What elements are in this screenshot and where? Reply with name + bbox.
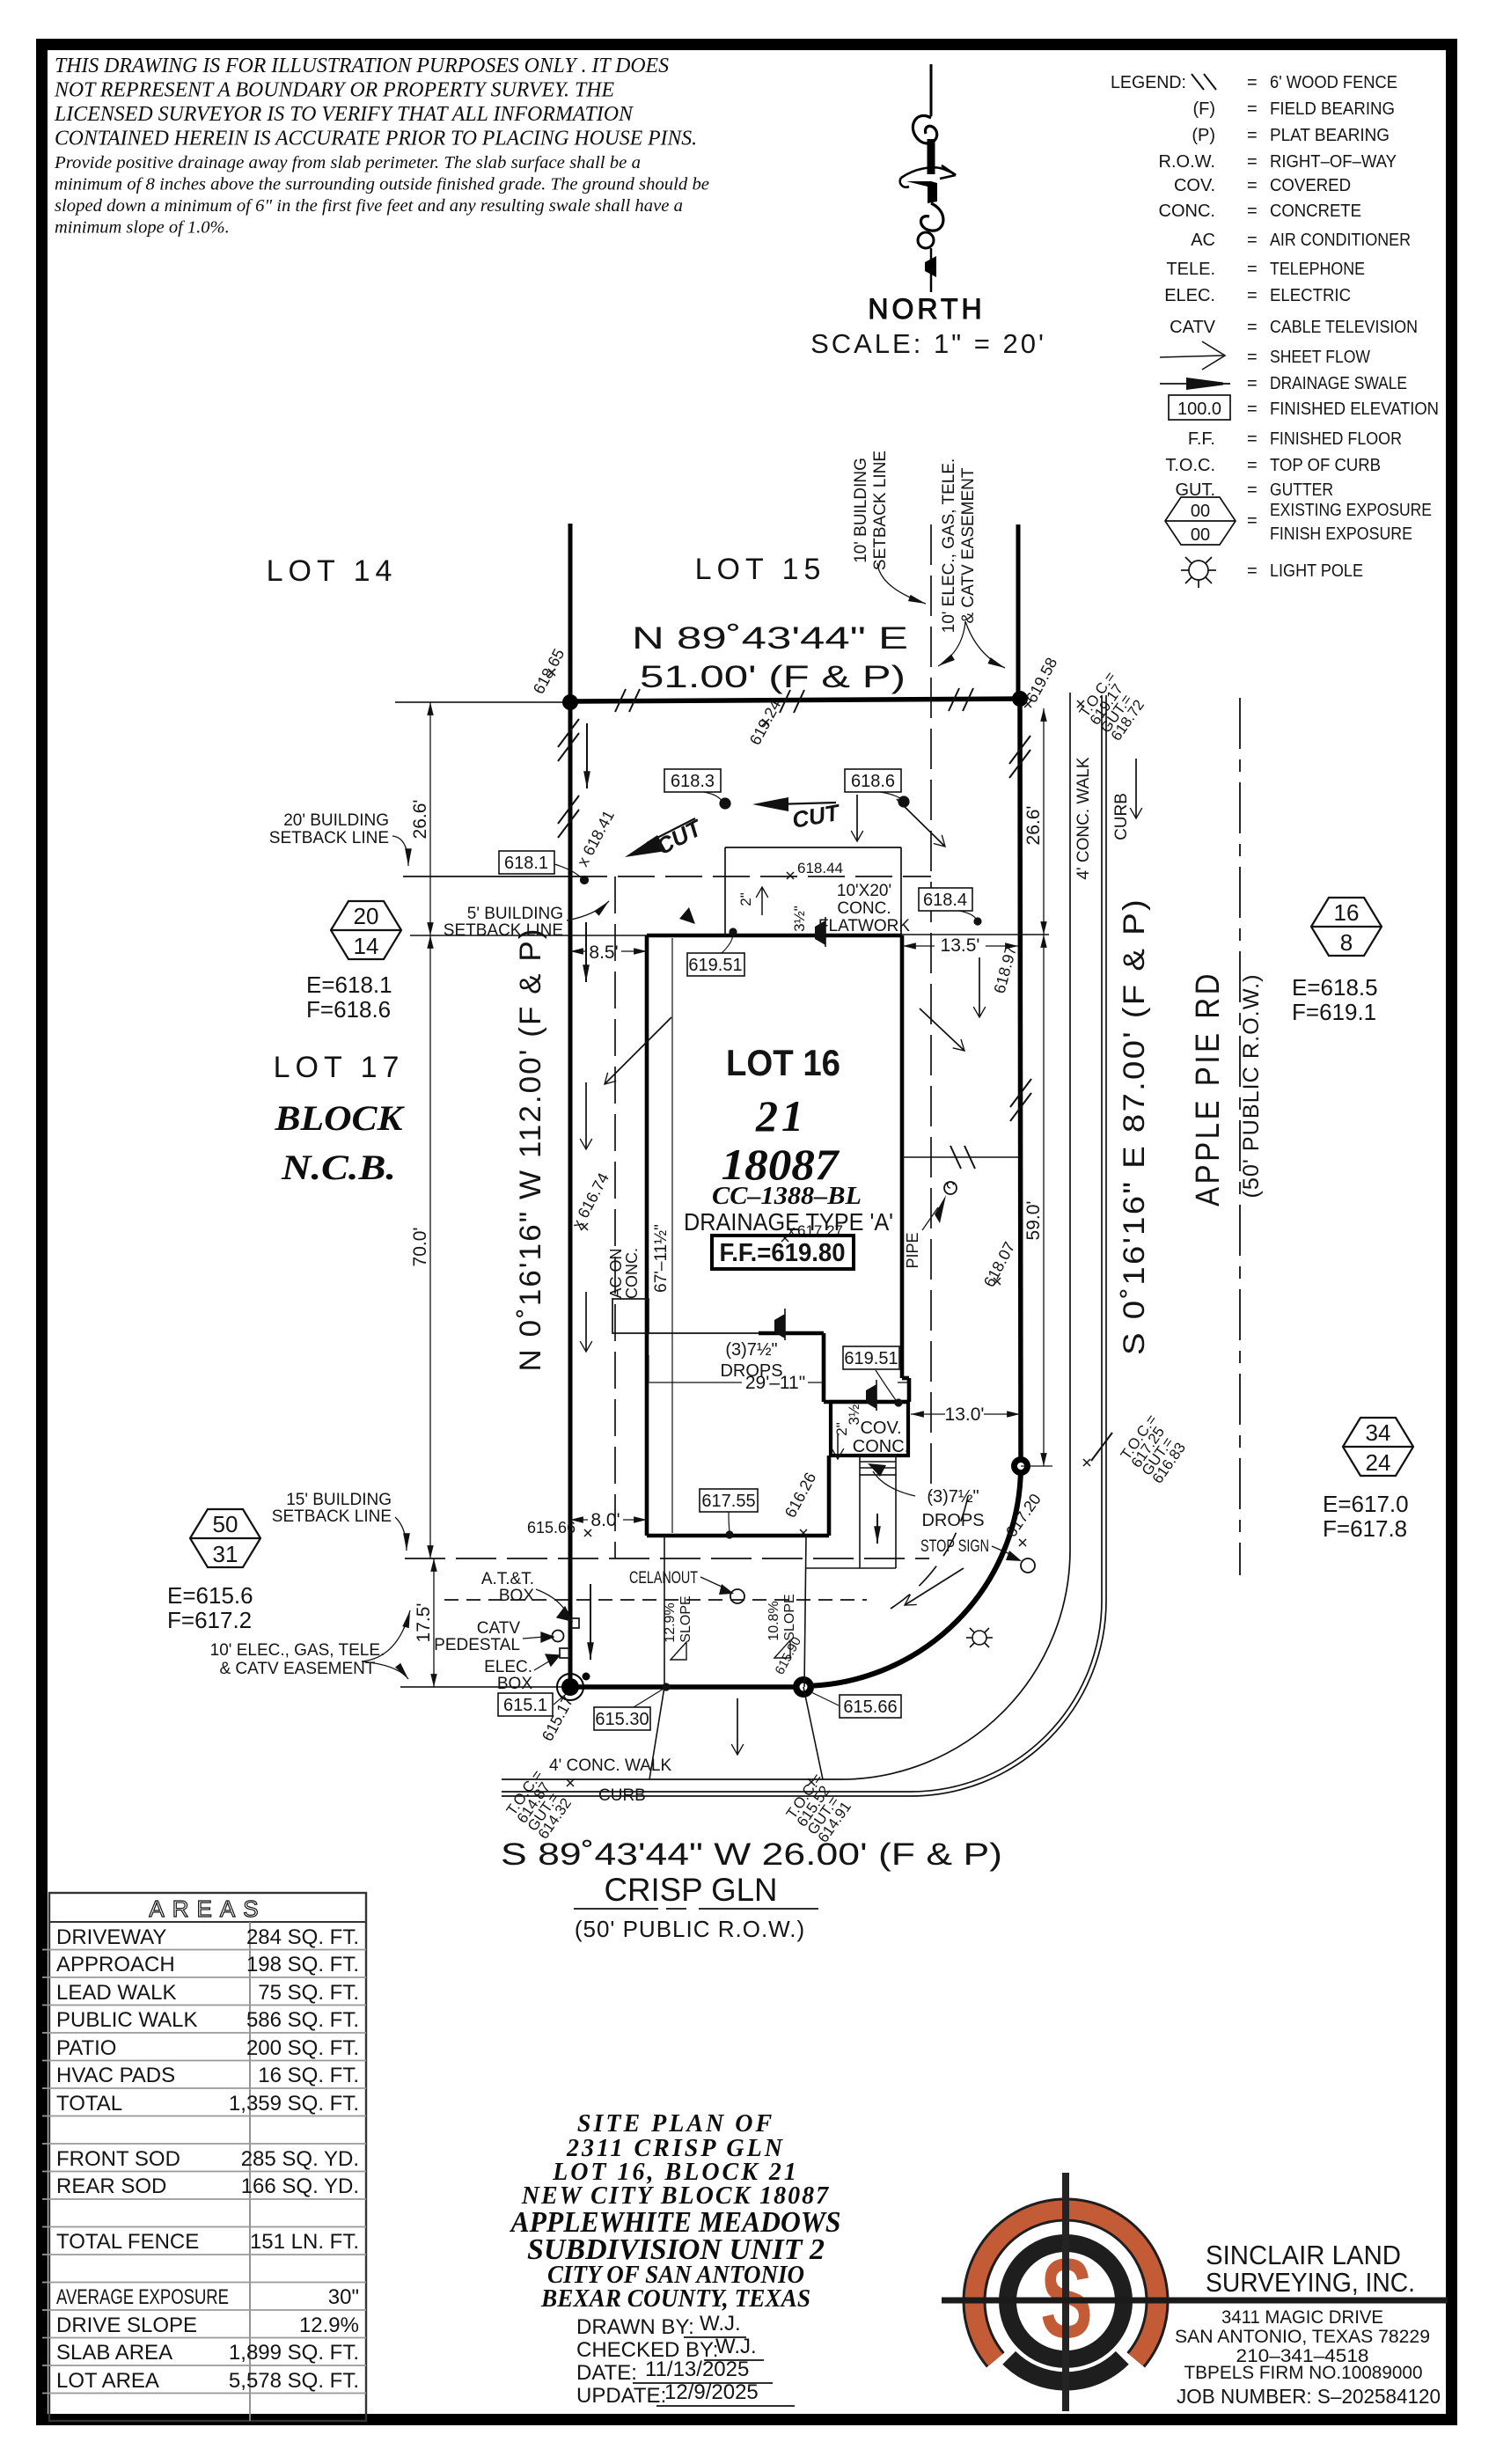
svg-text:=: = bbox=[1247, 480, 1258, 500]
svg-text:=: = bbox=[1247, 561, 1258, 581]
svg-text:=: = bbox=[1247, 318, 1258, 337]
svg-text:00: 00 bbox=[1191, 525, 1210, 545]
svg-text:F.F.=619.80: F.F.=619.80 bbox=[720, 1239, 846, 1267]
svg-text:20: 20 bbox=[354, 903, 379, 929]
svg-text:2": 2" bbox=[737, 892, 754, 906]
svg-text:13.0': 13.0' bbox=[945, 1404, 985, 1425]
svg-text:615.66: 615.66 bbox=[843, 1698, 897, 1717]
svg-text:=: = bbox=[1247, 126, 1258, 145]
svg-text:& CATV EASEMENT: & CATV EASEMENT bbox=[959, 467, 978, 623]
svg-text:10' BUILDING: 10' BUILDING bbox=[852, 458, 870, 563]
svg-text:TELEPHONE: TELEPHONE bbox=[1270, 260, 1365, 279]
svg-text:S 0˚16'16" E 87.00' (F & P): S 0˚16'16" E 87.00' (F & P) bbox=[1118, 898, 1151, 1355]
svg-text:618.4: 618.4 bbox=[923, 891, 967, 910]
svg-text:E=618.5: E=618.5 bbox=[1292, 974, 1378, 1001]
svg-text:HVAC PADS: HVAC PADS bbox=[56, 2064, 175, 2087]
svg-text:COVERED: COVERED bbox=[1270, 176, 1351, 195]
svg-text:=: = bbox=[1247, 429, 1258, 449]
svg-text:CONCRETE: CONCRETE bbox=[1270, 202, 1361, 221]
svg-text:=: = bbox=[1247, 152, 1258, 172]
svg-text:RIGHT–OF–WAY: RIGHT–OF–WAY bbox=[1270, 152, 1397, 172]
svg-text:20' BUILDING: 20' BUILDING bbox=[283, 811, 389, 830]
svg-text:TBPELS FIRM NO.10089000: TBPELS FIRM NO.10089000 bbox=[1184, 2363, 1423, 2383]
svg-text:THIS DRAWING IS FOR ILLUSTRATI: THIS DRAWING IS FOR ILLUSTRATION PURPOSE… bbox=[55, 54, 669, 77]
svg-text:17.5': 17.5' bbox=[414, 1603, 434, 1643]
svg-text:1,359 SQ. FT.: 1,359 SQ. FT. bbox=[229, 2092, 359, 2116]
svg-text:CONC.: CONC. bbox=[623, 1248, 641, 1299]
svg-text:100.0: 100.0 bbox=[1177, 400, 1221, 419]
svg-text:285 SQ. YD.: 285 SQ. YD. bbox=[241, 2147, 359, 2171]
svg-text:N 0˚16'16" W 112.00' (F & P): N 0˚16'16" W 112.00' (F & P) bbox=[514, 928, 547, 1372]
svg-text:BOX: BOX bbox=[499, 1587, 534, 1605]
svg-text:ELEC.: ELEC. bbox=[484, 1658, 532, 1676]
svg-text:T.O.C.: T.O.C. bbox=[1165, 456, 1215, 475]
svg-text:TOTAL: TOTAL bbox=[56, 2092, 122, 2116]
svg-text:50: 50 bbox=[213, 1511, 238, 1537]
svg-text:618.65: 618.65 bbox=[530, 646, 568, 697]
svg-text:10'X20': 10'X20' bbox=[837, 882, 891, 900]
svg-text:166 SQ. YD.: 166 SQ. YD. bbox=[241, 2174, 359, 2198]
svg-text:26.6': 26.6' bbox=[410, 800, 430, 840]
svg-text:COV.: COV. bbox=[1174, 176, 1215, 195]
svg-text:E=615.6: E=615.6 bbox=[167, 1582, 253, 1609]
svg-text:30": 30" bbox=[328, 2285, 359, 2309]
svg-text:=: = bbox=[1247, 176, 1258, 195]
svg-text:FINISH EXPOSURE: FINISH EXPOSURE bbox=[1270, 524, 1412, 544]
svg-text:200 SQ. FT.: 200 SQ. FT. bbox=[246, 2036, 359, 2060]
svg-text:SETBACK LINE: SETBACK LINE bbox=[272, 1507, 392, 1526]
svg-text:E=618.1: E=618.1 bbox=[306, 972, 392, 998]
svg-text:TELE.: TELE. bbox=[1166, 260, 1215, 279]
svg-text:(3)7½": (3)7½" bbox=[927, 1487, 979, 1507]
svg-text:12.9%: 12.9% bbox=[299, 2314, 359, 2337]
svg-text:minimum slope of 1.0%.: minimum slope of 1.0%. bbox=[55, 218, 230, 238]
svg-text:14: 14 bbox=[354, 933, 379, 959]
svg-text:NORTH: NORTH bbox=[868, 293, 985, 325]
svg-text:LEAD WALK: LEAD WALK bbox=[56, 1981, 177, 2005]
svg-text:SLOPE: SLOPE bbox=[678, 1595, 693, 1642]
svg-text:3½': 3½' bbox=[846, 1402, 862, 1426]
svg-text:(50' PUBLIC R.O.W.): (50' PUBLIC R.O.W.) bbox=[575, 1916, 805, 1942]
svg-text:AREAS: AREAS bbox=[149, 1896, 266, 1922]
svg-text:CABLE TELEVISION: CABLE TELEVISION bbox=[1270, 318, 1418, 337]
svg-text:DROPS: DROPS bbox=[921, 1511, 984, 1530]
svg-text:12.9%: 12.9% bbox=[663, 1602, 678, 1642]
svg-text:LEGEND:: LEGEND: bbox=[1111, 73, 1186, 92]
svg-text:FIELD BEARING: FIELD BEARING bbox=[1270, 99, 1395, 119]
svg-text:3411 MAGIC DRIVE: 3411 MAGIC DRIVE bbox=[1221, 2307, 1383, 2328]
svg-text:16 SQ. FT.: 16 SQ. FT. bbox=[258, 2064, 359, 2087]
svg-text:DRAINAGE SWALE: DRAINAGE SWALE bbox=[1270, 374, 1407, 393]
svg-text:CATV: CATV bbox=[477, 1619, 521, 1638]
svg-text:51.00' (F & P): 51.00' (F & P) bbox=[640, 660, 906, 694]
svg-text:F=617.8: F=617.8 bbox=[1323, 1515, 1407, 1542]
svg-text:COV.: COV. bbox=[860, 1419, 901, 1438]
svg-text:=: = bbox=[1247, 202, 1258, 221]
svg-text:FRONT SOD: FRONT SOD bbox=[56, 2147, 180, 2171]
svg-text:21: 21 bbox=[755, 1091, 807, 1140]
svg-text:F=617.2: F=617.2 bbox=[167, 1607, 252, 1633]
svg-text:619.24: 619.24 bbox=[746, 697, 785, 748]
svg-text:(F): (F) bbox=[1192, 99, 1215, 119]
svg-text:LIGHT POLE: LIGHT POLE bbox=[1270, 561, 1363, 581]
svg-text:A.T.&T.: A.T.&T. bbox=[481, 1570, 534, 1588]
svg-text:(3)7½": (3)7½" bbox=[725, 1340, 777, 1360]
svg-text:24: 24 bbox=[1366, 1449, 1391, 1476]
svg-text:CELANOUT: CELANOUT bbox=[629, 1569, 698, 1588]
svg-text:PIPE: PIPE bbox=[904, 1232, 921, 1268]
svg-text:BEXAR COUNTY, TEXAS: BEXAR COUNTY, TEXAS bbox=[540, 2285, 810, 2313]
svg-text:F.F.: F.F. bbox=[1188, 429, 1215, 449]
svg-text:W.J.: W.J. bbox=[700, 2312, 741, 2336]
svg-text:TOP OF CURB: TOP OF CURB bbox=[1270, 456, 1381, 475]
svg-text:CONC.: CONC. bbox=[853, 1437, 909, 1456]
svg-text:CURB: CURB bbox=[598, 1786, 646, 1805]
svg-text:615.30: 615.30 bbox=[595, 1710, 649, 1729]
svg-text:=: = bbox=[1247, 348, 1258, 367]
svg-text:minimum of 8 inches above the: minimum of 8 inches above the surroundin… bbox=[55, 175, 709, 194]
svg-text:CONC.: CONC. bbox=[837, 899, 891, 918]
svg-text:CONC.: CONC. bbox=[1159, 202, 1215, 221]
svg-text:UPDATE:: UPDATE: bbox=[576, 2384, 666, 2408]
svg-text:DATE:: DATE: bbox=[576, 2361, 637, 2385]
svg-text:16: 16 bbox=[1334, 899, 1360, 926]
svg-text:LOT 14: LOT 14 bbox=[267, 554, 398, 588]
svg-text:11/13/2025: 11/13/2025 bbox=[645, 2358, 749, 2381]
svg-text:GUTTER: GUTTER bbox=[1270, 480, 1333, 500]
svg-text:6' WOOD FENCE: 6' WOOD FENCE bbox=[1270, 73, 1397, 92]
svg-text:=: = bbox=[1247, 511, 1258, 531]
svg-text:29'–11": 29'–11" bbox=[745, 1373, 805, 1393]
svg-text:CATV: CATV bbox=[1170, 318, 1216, 337]
svg-text:x 616.74: x 616.74 bbox=[568, 1170, 612, 1232]
svg-text:4' CONC. WALK: 4' CONC. WALK bbox=[1074, 757, 1093, 879]
svg-text:LICENSED SURVEYOR IS TO VERIFY: LICENSED SURVEYOR IS TO VERIFY THAT ALL … bbox=[54, 102, 634, 126]
svg-text:NOT REPRESENT A BOUNDARY OR PR: NOT REPRESENT A BOUNDARY OR PROPERTY SUR… bbox=[54, 78, 614, 102]
svg-text:618.44: 618.44 bbox=[797, 860, 843, 876]
svg-text:x 618.41: x 618.41 bbox=[574, 808, 618, 869]
svg-text:8.5': 8.5' bbox=[589, 942, 618, 963]
svg-text:& CATV EASEMENT: & CATV EASEMENT bbox=[219, 1660, 375, 1678]
svg-text:617.55: 617.55 bbox=[701, 1492, 755, 1511]
svg-text:FINISHED FLOOR: FINISHED FLOOR bbox=[1270, 429, 1402, 449]
svg-text:SETBACK LINE: SETBACK LINE bbox=[871, 451, 890, 570]
svg-text:SHEET FLOW: SHEET FLOW bbox=[1270, 348, 1370, 367]
svg-text:619.51: 619.51 bbox=[844, 1349, 898, 1368]
svg-text:59.0': 59.0' bbox=[1023, 1201, 1044, 1241]
svg-text:SAN ANTONIO, TEXAS 78229: SAN ANTONIO, TEXAS 78229 bbox=[1175, 2327, 1430, 2347]
svg-text:BLOCK: BLOCK bbox=[274, 1098, 405, 1138]
svg-text:DRIVE SLOPE: DRIVE SLOPE bbox=[56, 2314, 197, 2337]
svg-text:1,899 SQ. FT.: 1,899 SQ. FT. bbox=[229, 2341, 359, 2365]
svg-text:APPROACH: APPROACH bbox=[56, 1953, 175, 1976]
svg-text:=: = bbox=[1247, 260, 1258, 279]
svg-text:=: = bbox=[1247, 456, 1258, 475]
svg-text:AC ON: AC ON bbox=[607, 1248, 625, 1298]
svg-text:=: = bbox=[1247, 231, 1258, 250]
svg-text:CURB: CURB bbox=[1112, 793, 1131, 840]
svg-text:F=619.1: F=619.1 bbox=[1292, 999, 1376, 1025]
svg-text:67'–11½": 67'–11½" bbox=[652, 1224, 671, 1293]
svg-text:618.3: 618.3 bbox=[671, 772, 715, 791]
svg-text:198 SQ. FT.: 198 SQ. FT. bbox=[246, 1953, 359, 1976]
svg-text:FLATWORK: FLATWORK bbox=[818, 917, 910, 935]
svg-text:12/9/2025: 12/9/2025 bbox=[664, 2380, 759, 2404]
svg-text:E=617.0: E=617.0 bbox=[1323, 1491, 1409, 1517]
svg-text:DRIVEWAY: DRIVEWAY bbox=[56, 1925, 166, 1949]
svg-text:619.58: 619.58 bbox=[1023, 655, 1061, 706]
svg-text:26.6': 26.6' bbox=[1023, 806, 1044, 846]
svg-text:618.97: 618.97 bbox=[991, 944, 1021, 995]
svg-text:SETBACK LINE: SETBACK LINE bbox=[269, 829, 389, 847]
svg-text:619.51: 619.51 bbox=[688, 956, 742, 975]
svg-text:617.20: 617.20 bbox=[1002, 1491, 1045, 1541]
svg-text:AC: AC bbox=[1191, 231, 1215, 250]
svg-text:FINISHED ELEVATION: FINISHED ELEVATION bbox=[1270, 400, 1439, 419]
svg-text:PEDESTAL: PEDESTAL bbox=[434, 1636, 520, 1654]
svg-text:618.07: 618.07 bbox=[980, 1239, 1019, 1290]
svg-text:AIR CONDITIONER: AIR CONDITIONER bbox=[1270, 231, 1411, 250]
svg-text:N 89˚43'44" E: N 89˚43'44" E bbox=[632, 621, 908, 656]
svg-text:R.O.W.: R.O.W. bbox=[1159, 152, 1215, 172]
svg-text:JOB NUMBER: S–202584120: JOB NUMBER: S–202584120 bbox=[1177, 2385, 1441, 2408]
svg-text:=: = bbox=[1247, 374, 1258, 393]
svg-text:SLAB AREA: SLAB AREA bbox=[56, 2341, 172, 2365]
svg-text:5' BUILDING: 5' BUILDING bbox=[467, 905, 563, 923]
svg-text:LOT 16: LOT 16 bbox=[726, 1042, 840, 1083]
svg-text:3½": 3½" bbox=[791, 906, 808, 932]
svg-text:10.8%: 10.8% bbox=[766, 1601, 781, 1640]
svg-text:151 LN. FT.: 151 LN. FT. bbox=[250, 2230, 359, 2254]
svg-text:TOTAL FENCE: TOTAL FENCE bbox=[56, 2230, 199, 2254]
svg-text:=: = bbox=[1247, 286, 1258, 305]
svg-text:615.1: 615.1 bbox=[503, 1696, 547, 1715]
svg-text:APPLE PIE RD: APPLE PIE RD bbox=[1190, 971, 1227, 1206]
svg-text:31: 31 bbox=[213, 1541, 238, 1567]
svg-text:ELEC.: ELEC. bbox=[1164, 286, 1215, 305]
svg-text:SITE PLAN OF: SITE PLAN OF bbox=[577, 2110, 774, 2138]
svg-text:CRISP GLN: CRISP GLN bbox=[605, 1872, 778, 1908]
svg-text:SLOPE: SLOPE bbox=[782, 1594, 797, 1640]
svg-text:(P): (P) bbox=[1192, 126, 1215, 145]
svg-text:LOT AREA: LOT AREA bbox=[56, 2369, 159, 2393]
svg-text:LOT 15: LOT 15 bbox=[695, 553, 826, 586]
svg-text:S 89˚43'44" W 26.00' (F & P): S 89˚43'44" W 26.00' (F & P) bbox=[501, 1837, 1002, 1872]
svg-text:616.26: 616.26 bbox=[781, 1470, 820, 1521]
svg-text:(50' PUBLIC R.O.W.): (50' PUBLIC R.O.W.) bbox=[1239, 974, 1264, 1199]
svg-text:SCALE: 1" = 20': SCALE: 1" = 20' bbox=[810, 328, 1046, 359]
svg-text:10' ELEC., GAS, TELE.: 10' ELEC., GAS, TELE. bbox=[210, 1641, 385, 1660]
svg-text:618.1: 618.1 bbox=[504, 854, 548, 873]
svg-text:PLAT BEARING: PLAT BEARING bbox=[1270, 126, 1390, 145]
svg-text:586 SQ. FT.: 586 SQ. FT. bbox=[246, 2008, 359, 2032]
svg-text:CUT: CUT bbox=[652, 814, 708, 861]
svg-text:PUBLIC WALK: PUBLIC WALK bbox=[56, 2008, 198, 2032]
svg-text:34: 34 bbox=[1366, 1419, 1391, 1446]
svg-text:F=618.6: F=618.6 bbox=[306, 996, 391, 1023]
svg-text:BOX: BOX bbox=[497, 1675, 532, 1693]
svg-text:10' ELEC., GAS, TELE.: 10' ELEC., GAS, TELE. bbox=[940, 458, 958, 634]
svg-text:00: 00 bbox=[1191, 502, 1210, 521]
svg-text:SINCLAIR LAND: SINCLAIR LAND bbox=[1206, 2240, 1401, 2270]
svg-text:LOT 17: LOT 17 bbox=[274, 1051, 405, 1084]
svg-text:N.C.B.: N.C.B. bbox=[281, 1148, 396, 1187]
svg-text:13.5': 13.5' bbox=[941, 935, 980, 956]
svg-text:CC–1388–BL: CC–1388–BL bbox=[712, 1182, 862, 1210]
svg-text:CONTAINED HEREIN IS ACCURATE P: CONTAINED HEREIN IS ACCURATE PRIOR TO PL… bbox=[55, 127, 697, 150]
svg-text:AVERAGE EXPOSURE: AVERAGE EXPOSURE bbox=[56, 2285, 229, 2309]
svg-text:70.0': 70.0' bbox=[410, 1228, 430, 1267]
svg-text:=: = bbox=[1247, 400, 1258, 419]
svg-text:PATIO: PATIO bbox=[56, 2036, 116, 2060]
svg-text:Provide positive drainage away: Provide positive drainage away from slab… bbox=[54, 153, 641, 172]
svg-text:SURVEYING, INC.: SURVEYING, INC. bbox=[1206, 2267, 1415, 2298]
svg-text:x: x bbox=[788, 1222, 796, 1239]
svg-text:EXISTING EXPOSURE: EXISTING EXPOSURE bbox=[1270, 501, 1432, 520]
svg-text:4' CONC. WALK: 4' CONC. WALK bbox=[549, 1756, 671, 1775]
svg-text:DRAWN BY:: DRAWN BY: bbox=[576, 2315, 694, 2339]
svg-text:284 SQ. FT.: 284 SQ. FT. bbox=[246, 1925, 359, 1949]
svg-text:5,578 SQ. FT.: 5,578 SQ. FT. bbox=[229, 2369, 359, 2393]
svg-text:8: 8 bbox=[1340, 929, 1353, 956]
svg-text:75 SQ. FT.: 75 SQ. FT. bbox=[258, 1981, 359, 2005]
svg-text:=: = bbox=[1247, 99, 1258, 119]
svg-text:615.66: 615.66 bbox=[527, 1519, 576, 1536]
svg-text:W.J.: W.J. bbox=[715, 2335, 757, 2358]
svg-text:REAR SOD: REAR SOD bbox=[56, 2174, 166, 2198]
svg-text:8.0': 8.0' bbox=[590, 1510, 620, 1530]
svg-text:STOP SIGN: STOP SIGN bbox=[920, 1537, 989, 1556]
svg-text:=: = bbox=[1247, 73, 1258, 92]
svg-text:ELECTRIC: ELECTRIC bbox=[1270, 286, 1351, 305]
svg-text:15' BUILDING: 15' BUILDING bbox=[286, 1491, 392, 1509]
svg-text:SETBACK LINE: SETBACK LINE bbox=[444, 921, 563, 940]
svg-text:618.6: 618.6 bbox=[851, 772, 895, 791]
svg-text:sloped down a minimum of 6" in: sloped down a minimum of 6" in the first… bbox=[55, 196, 683, 216]
